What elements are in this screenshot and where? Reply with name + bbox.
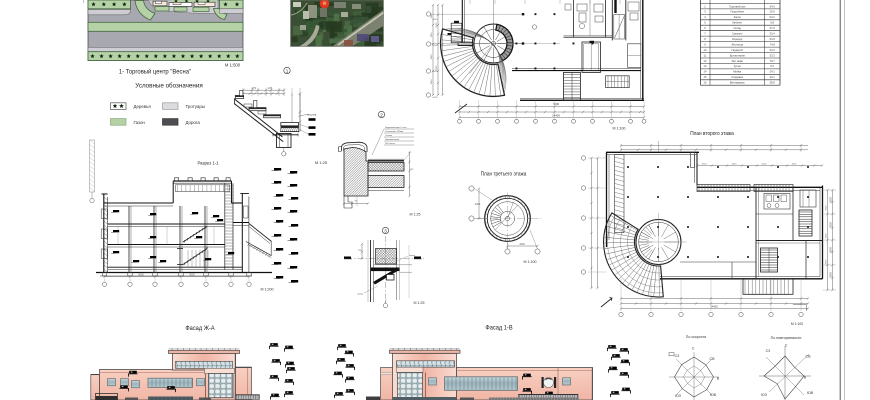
- svg-text:5.2: 5.2: [770, 64, 774, 68]
- svg-text:Санузел: Санузел: [732, 32, 743, 36]
- svg-text:1860: 1860: [431, 13, 433, 19]
- svg-text:24400: 24400: [552, 114, 560, 118]
- svg-text:Деревья: Деревья: [134, 104, 152, 109]
- svg-text:3000: 3000: [825, 205, 827, 211]
- svg-text:План третьего этажа: План третьего этажа: [481, 171, 527, 177]
- svg-text:6000: 6000: [433, 71, 439, 73]
- svg-text:Ж/б плита: Ж/б плита: [385, 143, 396, 145]
- svg-text:64.2: 64.2: [770, 15, 776, 19]
- svg-text:6000: 6000: [436, 65, 438, 71]
- svg-text:М 1:100: М 1:100: [613, 127, 626, 131]
- svg-text:Тротуары: Тротуары: [186, 104, 205, 109]
- svg-text:6000: 6000: [433, 19, 439, 21]
- svg-text:4400: 4400: [475, 203, 481, 206]
- svg-text:33.3: 33.3: [770, 53, 776, 57]
- svg-text:3000: 3000: [825, 259, 827, 265]
- svg-text:Стяжка: Стяжка: [385, 135, 393, 137]
- svg-text:6000: 6000: [830, 197, 833, 203]
- svg-text:ЮВ: ЮВ: [710, 393, 717, 397]
- svg-text:ЮВ: ЮВ: [807, 391, 814, 395]
- svg-text:Кухня: Кухня: [734, 64, 742, 68]
- svg-text:20.6: 20.6: [770, 10, 776, 14]
- svg-text:Касса: Касса: [734, 15, 742, 19]
- svg-text:Пароизоляция: Пароизоляция: [385, 139, 399, 141]
- svg-text:анкер: анкер: [357, 294, 364, 296]
- svg-text:По скорости: По скорости: [686, 335, 706, 339]
- svg-text:тип.узла: тип.узла: [307, 113, 317, 116]
- svg-text:Венткамера: Венткамера: [730, 81, 745, 85]
- svg-text:Кабинет: Кабинет: [732, 21, 743, 25]
- svg-text:38.8: 38.8: [770, 81, 776, 85]
- svg-text:34.9: 34.9: [770, 4, 776, 8]
- svg-text:С: С: [785, 344, 788, 348]
- svg-text:3000: 3000: [762, 163, 768, 165]
- svg-text:6000: 6000: [830, 272, 833, 278]
- svg-text:37.9: 37.9: [770, 26, 776, 30]
- svg-text:7200: 7200: [553, 102, 560, 106]
- svg-text:Гидроизоляция 2 слоя: Гидроизоляция 2 слоя: [385, 127, 407, 129]
- svg-text:План второго этажа: План второго этажа: [690, 131, 734, 137]
- svg-text:Подсобная: Подсобная: [731, 10, 745, 14]
- svg-text:Фасад Ж-А: Фасад Ж-А: [185, 326, 214, 332]
- svg-text:М 1:25: М 1:25: [315, 160, 328, 165]
- svg-text:42.1: 42.1: [770, 75, 776, 79]
- svg-text:М 1:25: М 1:25: [410, 213, 421, 217]
- svg-text:4400: 4400: [519, 243, 525, 246]
- svg-text:М 1:200: М 1:200: [261, 288, 274, 292]
- svg-text:М 1:100: М 1:100: [791, 322, 803, 326]
- svg-text:1860: 1860: [431, 79, 433, 85]
- svg-text:6000: 6000: [433, 45, 439, 47]
- svg-text:Фасад 1-В: Фасад 1-В: [485, 325, 512, 331]
- svg-text:Газон: Газон: [134, 120, 146, 125]
- svg-text:270: 270: [252, 86, 257, 90]
- svg-text:Лестница: Лестница: [731, 42, 743, 46]
- svg-text:ЮЗ: ЮЗ: [761, 393, 767, 397]
- svg-text:3000: 3000: [732, 163, 738, 165]
- svg-text:1- Торговый центр "Весна": 1- Торговый центр "Весна": [119, 68, 191, 75]
- svg-text:СВ: СВ: [710, 357, 716, 361]
- svg-text:74.8: 74.8: [770, 42, 776, 46]
- svg-text:24.1: 24.1: [770, 70, 776, 74]
- svg-text:Бухгалтерия: Бухгалтерия: [730, 53, 746, 57]
- svg-text:Гардероб: Гардероб: [731, 48, 743, 52]
- svg-text:СЗ: СЗ: [675, 354, 680, 358]
- svg-text:По повторяемости: По повторяемости: [771, 336, 802, 340]
- svg-text:54.3: 54.3: [770, 48, 776, 52]
- svg-text:М 1:500: М 1:500: [225, 63, 241, 68]
- svg-text:Мойка: Мойка: [733, 70, 741, 74]
- svg-text:6000: 6000: [138, 274, 144, 277]
- svg-text:6000: 6000: [189, 274, 195, 277]
- svg-text:33.4: 33.4: [770, 32, 776, 36]
- svg-text:Кладовая: Кладовая: [731, 75, 743, 79]
- svg-text:СВ: СВ: [806, 355, 812, 359]
- svg-text:3000: 3000: [825, 233, 827, 239]
- svg-text:6000: 6000: [830, 222, 833, 228]
- svg-text:Зал кафе: Зал кафе: [731, 59, 743, 63]
- svg-text:6000: 6000: [433, 97, 439, 99]
- svg-text:М 1:25: М 1:25: [414, 301, 425, 305]
- svg-text:5.8: 5.8: [770, 21, 774, 25]
- svg-text:Дорога: Дорога: [186, 120, 201, 125]
- svg-text:Коридор: Коридор: [732, 37, 743, 41]
- svg-text:24400: 24400: [710, 304, 718, 308]
- svg-text:Условные обозначения: Условные обозначения: [135, 81, 203, 89]
- svg-text:64.9: 64.9: [770, 37, 776, 41]
- svg-text:6000: 6000: [436, 22, 438, 28]
- svg-text:ЮЗ: ЮЗ: [675, 394, 681, 398]
- svg-text:М 1:100: М 1:100: [524, 260, 537, 264]
- svg-text:1860: 1860: [431, 54, 433, 60]
- svg-text:70.7: 70.7: [770, 59, 776, 63]
- svg-text:СЗ: СЗ: [766, 349, 771, 353]
- svg-text:274: 274: [268, 86, 273, 90]
- svg-text:Торговый зал: Торговый зал: [729, 4, 746, 8]
- svg-text:Разрез 1-1: Разрез 1-1: [197, 161, 219, 166]
- svg-text:1860: 1860: [431, 32, 433, 38]
- svg-text:Утеплитель 150мм: Утеплитель 150мм: [385, 131, 404, 133]
- svg-text:3000: 3000: [702, 163, 708, 165]
- svg-text:Склад: Склад: [733, 26, 741, 30]
- svg-text:С: С: [692, 347, 695, 351]
- svg-text:3000: 3000: [792, 163, 798, 165]
- svg-text:6000: 6000: [830, 247, 833, 253]
